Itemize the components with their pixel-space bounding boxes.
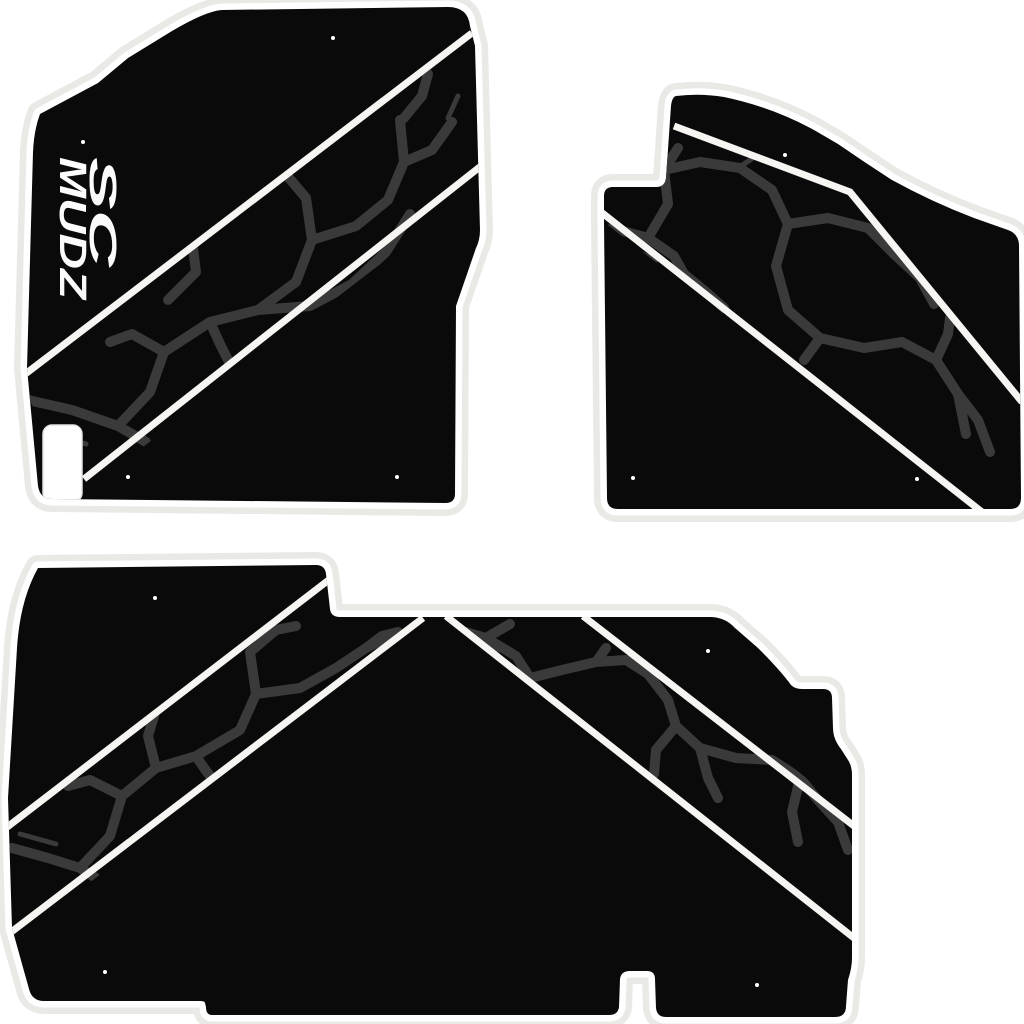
registration-dot: [783, 153, 787, 157]
driver-front-mat: SC MUDZ: [24, 7, 481, 503]
brand-logo-line2: MUDZ: [51, 157, 93, 301]
registration-dot: [915, 477, 919, 481]
registration-dot: [706, 649, 710, 653]
registration-dot: [755, 983, 759, 987]
mat-canvas: SC MUDZ: [0, 0, 1024, 1024]
rear-bench-mat: [6, 565, 854, 1017]
driver-heel-pad: [43, 425, 82, 502]
registration-dot: [631, 476, 635, 480]
registration-dot: [126, 475, 130, 479]
registration-dot: [103, 970, 107, 974]
registration-dot: [331, 36, 335, 40]
passenger-front-mat: [601, 95, 1022, 512]
registration-dot: [395, 475, 399, 479]
registration-dot: [153, 596, 157, 600]
floor-mat-set-image: SC MUDZ: [0, 0, 1024, 1024]
registration-dot: [81, 140, 85, 144]
